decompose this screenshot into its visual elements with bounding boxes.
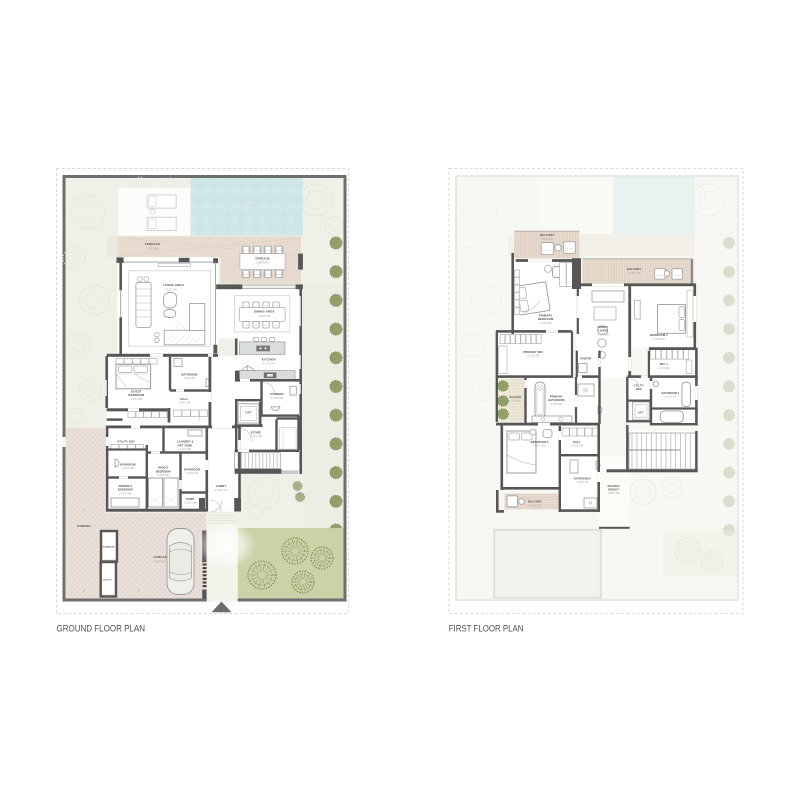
svg-text:GARBAGE: GARBAGE [103, 546, 115, 549]
svg-text:7.7X1.7M: 7.7X1.7M [628, 271, 640, 275]
svg-text:3.6X6.2M: 3.6X6.2M [597, 332, 609, 336]
svg-text:7.5X6.6M: 7.5X6.6M [165, 287, 177, 291]
svg-text:MAID'S: MAID'S [158, 466, 168, 470]
svg-text:LIVING: LIVING [598, 329, 608, 333]
svg-text:2.5X3.6M: 2.5X3.6M [157, 473, 169, 477]
svg-text:1.5X2.4M: 1.5X2.4M [186, 471, 198, 475]
svg-text:BEDROOM: BEDROOM [118, 488, 133, 492]
svg-text:BEDROOM 2: BEDROOM 2 [531, 440, 549, 444]
svg-text:PET ZONE: PET ZONE [178, 443, 192, 447]
svg-text:PRIMARY WIC: PRIMARY WIC [523, 350, 543, 354]
svg-text:BEDROOM: BEDROOM [538, 317, 554, 321]
svg-text:4.3X2.7M: 4.3X2.7M [263, 361, 275, 365]
svg-text:4.2X4.3M: 4.2X4.3M [534, 444, 546, 448]
svg-text:UTILITY: UTILITY [103, 580, 112, 582]
svg-text:PARKING: PARKING [77, 524, 90, 528]
svg-text:2.9X1.9M: 2.9X1.9M [658, 366, 670, 370]
svg-text:BATHROOM 2: BATHROOM 2 [574, 478, 591, 481]
svg-text:UTILITY BOX: UTILITY BOX [117, 440, 135, 444]
svg-text:BALCONY: BALCONY [528, 500, 542, 504]
svg-text:8.0X1.4M: 8.0X1.4M [529, 503, 541, 507]
svg-text:HEIGHT: HEIGHT [608, 488, 619, 492]
svg-text:2.4X1.5M: 2.4X1.5M [122, 466, 134, 470]
svg-text:1.9X3.7M: 1.9X3.7M [577, 480, 589, 484]
svg-text:4.0X1.8M: 4.0X1.8M [541, 237, 553, 241]
svg-text:LOBBY: LOBBY [216, 484, 227, 488]
svg-text:HALL: HALL [573, 440, 581, 444]
svg-text:HALL: HALL [180, 397, 188, 401]
svg-text:WIC 1: WIC 1 [660, 362, 669, 366]
svg-text:BALCONY: BALCONY [540, 233, 555, 237]
svg-text:BEDROOM 1: BEDROOM 1 [650, 333, 668, 337]
svg-text:DOUBLE: DOUBLE [608, 484, 620, 488]
svg-text:BATHROOM: BATHROOM [120, 463, 136, 467]
svg-text:LAUNDRY &: LAUNDRY & [177, 440, 194, 444]
svg-text:GROUND FLOOR PLAN: GROUND FLOOR PLAN [57, 624, 146, 634]
svg-text:1.5X1.2M: 1.5X1.2M [184, 500, 196, 504]
svg-text:KITCHEN: KITCHEN [262, 358, 276, 362]
svg-text:1.9X2.7M: 1.9X2.7M [608, 491, 620, 495]
svg-text:PANTRY: PANTRY [580, 357, 591, 361]
svg-text:DRIVER'S: DRIVER'S [119, 484, 132, 488]
svg-text:TERRACE: TERRACE [145, 242, 160, 246]
svg-text:LIFT: LIFT [245, 411, 251, 415]
svg-text:FIRST FLOOR PLAN: FIRST FLOOR PLAN [449, 624, 524, 634]
svg-text:BATHROOM: BATHROOM [181, 372, 197, 376]
svg-text:GARAGE: GARAGE [154, 555, 167, 559]
svg-text:BATHROOM: BATHROOM [548, 398, 565, 402]
svg-text:2.0X1.3M: 2.0X1.3M [571, 444, 583, 448]
svg-text:5.1X2.2M: 5.1X2.2M [527, 354, 539, 358]
svg-text:PUMP: PUMP [186, 497, 194, 501]
svg-text:LIVING AREA: LIVING AREA [163, 283, 185, 287]
svg-text:BEDROOM: BEDROOM [156, 469, 171, 473]
svg-text:4.0X3.3M: 4.0X3.3M [550, 402, 562, 406]
svg-text:2.4X3.5M: 2.4X3.5M [119, 491, 131, 495]
svg-text:POOL: POOL [249, 203, 258, 207]
svg-text:2.6X3.6M: 2.6X3.6M [179, 447, 191, 451]
svg-text:2.0X2.5M: 2.0X2.5M [271, 396, 283, 400]
svg-text:2.0X1.9M: 2.0X1.9M [178, 401, 190, 405]
svg-text:1.9X2.7M: 1.9X2.7M [215, 488, 227, 492]
svg-text:4.0X2.4M: 4.0X2.4M [183, 376, 195, 380]
svg-text:BATHROOM: BATHROOM [184, 467, 200, 471]
svg-text:BEDROOM: BEDROOM [128, 393, 144, 397]
svg-text:TERRACE: TERRACE [255, 256, 270, 260]
svg-text:LIFT: LIFT [638, 410, 644, 414]
svg-text:4.5X3.5M: 4.5X3.5M [258, 314, 270, 318]
svg-text:5.8X3.5M: 5.8X3.5M [257, 261, 269, 265]
svg-text:4.2X4.5M: 4.2X4.5M [540, 321, 552, 325]
svg-text:STORE: STORE [251, 430, 261, 434]
svg-text:6.0X3.0M: 6.0X3.0M [154, 559, 166, 563]
svg-text:2.1X3.0M: 2.1X3.0M [664, 394, 676, 398]
svg-text:DINING AREA: DINING AREA [254, 309, 276, 313]
svg-text:BALCONY: BALCONY [627, 267, 642, 271]
svg-text:7.2X1.5M: 7.2X1.5M [147, 246, 159, 250]
svg-text:4.3X4.6M: 4.3X4.6M [653, 337, 665, 341]
svg-text:PRIMARY: PRIMARY [550, 394, 563, 398]
svg-text:1.7X3.5M: 1.7X3.5M [509, 398, 521, 402]
svg-text:POWDER: POWDER [270, 392, 283, 396]
svg-text:BATHROOM 1: BATHROOM 1 [662, 392, 680, 395]
svg-text:4.0X4.6M: 4.0X4.6M [130, 397, 142, 401]
svg-text:BALCONY: BALCONY [509, 396, 521, 399]
